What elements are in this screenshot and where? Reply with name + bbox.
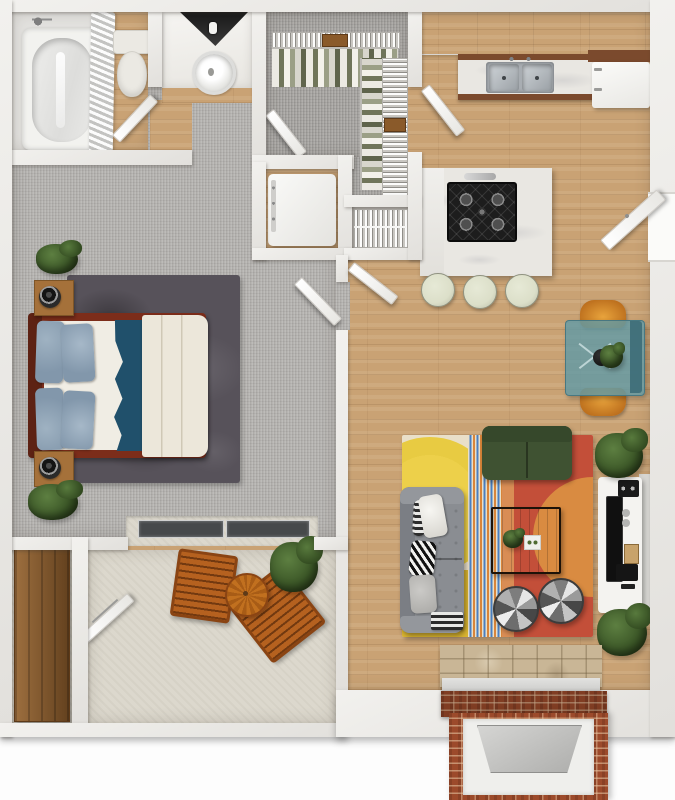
nightstand-speaker-bottom: [39, 457, 61, 479]
loveseat-backrest: [482, 426, 572, 442]
coffee-table-plant: [503, 530, 523, 548]
console-plant-bottom: [597, 609, 647, 656]
sliding-door-glass-left: [138, 520, 224, 538]
nightstand-speaker-top: [39, 286, 61, 308]
wall-laundry-left: [252, 162, 266, 260]
sliding-door-glass-right: [226, 520, 310, 538]
wall-kitchen-left-lower: [408, 152, 422, 260]
bed-duvet: [142, 315, 208, 457]
gas-cooktop: [447, 182, 517, 242]
pantry-wire-shelving: [354, 209, 408, 248]
coffee-table-tray: [524, 535, 541, 550]
toilet-bowl: [117, 51, 147, 97]
console-book: [624, 544, 639, 564]
bar-stool-1: [421, 273, 455, 307]
game-console: [616, 564, 638, 581]
sofa-pillow-zebra: [408, 540, 437, 577]
wall-outer-top: [0, 0, 675, 12]
loveseat-seam: [526, 442, 528, 478]
bedroom-plant-top: [36, 244, 78, 274]
console-knob-2: [622, 519, 630, 527]
wall-patio-top-right: [314, 537, 348, 550]
sink-drain-right-icon: [535, 76, 539, 80]
dining-table-edge: [630, 321, 642, 393]
storage-cabinet: [14, 548, 70, 722]
bedroom-doorway-floor: [336, 282, 350, 330]
wall-bath-right: [148, 12, 162, 87]
wall-patio-top-left: [0, 537, 128, 550]
soap-dispenser-icon: [209, 22, 217, 34]
bar-stool-3: [505, 274, 539, 308]
bath-entry-wood: [150, 100, 192, 150]
console-knob-1: [622, 509, 630, 517]
sofa-pillow-gray: [409, 574, 438, 614]
upper-cabinets: [422, 12, 650, 55]
wall-outer-bottom-patio: [0, 723, 348, 737]
wall-closet-left: [252, 12, 266, 162]
console-plant-top: [595, 433, 643, 478]
shower-curtain: [89, 12, 115, 152]
patio-table-center-icon: [243, 591, 248, 596]
av-receiver: [618, 480, 639, 497]
centerpiece-plant: [600, 345, 623, 368]
vessel-sink: [192, 51, 236, 95]
cabinet-above-fridge: [588, 50, 650, 62]
shower-head-icon: [32, 13, 52, 27]
bathtub-highlight: [56, 52, 65, 128]
closet-side-box: [384, 118, 406, 132]
sink-drain-icon: [208, 68, 214, 76]
washer-dryer: [268, 174, 336, 246]
closet-hanging-clothes-side: [360, 58, 384, 190]
floor-plan: [0, 0, 675, 800]
island-end-cabinet: [420, 168, 444, 276]
wall-kitchen-left-upper: [408, 12, 422, 87]
wall-bedroom-right-lower: [336, 330, 348, 690]
bed-pillow-2: [61, 323, 96, 383]
wall-outer-right: [650, 0, 675, 737]
bedroom-plant-bottom: [28, 484, 78, 520]
fireplace-firebox: [477, 725, 582, 773]
washer-controls: [271, 180, 276, 232]
fridge-handle-bottom: [594, 88, 602, 91]
wall-bedroom-right-upper: [336, 255, 348, 282]
wall-storage-inner: [72, 537, 88, 723]
closet-shelf-box: [322, 34, 348, 47]
ottoman-2: [538, 578, 584, 624]
patio-plant: [270, 542, 318, 592]
fridge-handle-top: [594, 68, 602, 71]
bar-stool-2: [463, 275, 497, 309]
bed-pillow-4: [61, 390, 96, 450]
griddle-tray-icon: [464, 173, 496, 180]
console-accessory: [621, 584, 635, 589]
wall-bath-bottom: [0, 150, 192, 165]
faucet-icon: [508, 57, 532, 61]
sofa-throw-striped: [431, 612, 463, 630]
wall-outer-left: [0, 0, 12, 737]
sink-drain-left-icon: [502, 76, 506, 80]
pantry-shelf-divider: [354, 226, 406, 228]
ottoman-1: [493, 586, 539, 632]
wall-laundry-right: [338, 155, 352, 260]
